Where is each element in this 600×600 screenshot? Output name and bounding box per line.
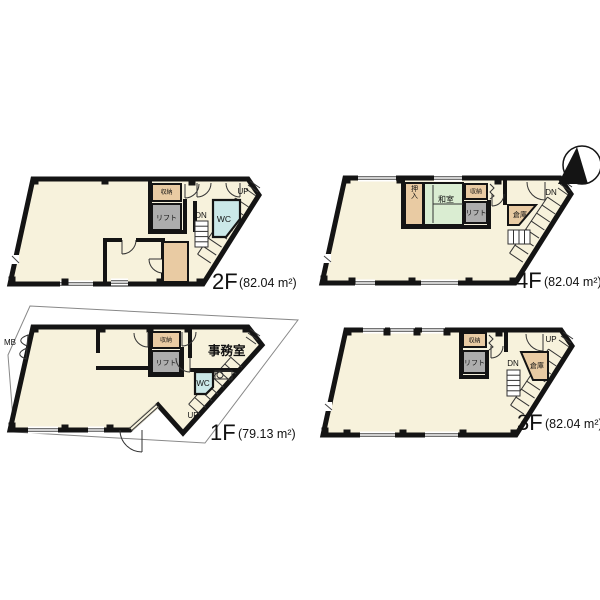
dn-stair-2f xyxy=(195,221,208,247)
room-small-storage-2f xyxy=(163,242,188,282)
landing-stair-4f xyxy=(508,230,530,244)
lift-label-2f: リフト xyxy=(156,214,177,222)
wc-label-1f: WC xyxy=(196,379,210,388)
lift-block-1f: 収納 リフト xyxy=(148,329,184,375)
lift-label-3f: リフト xyxy=(464,359,485,367)
washitsu-label-4f: 和室 xyxy=(438,194,454,204)
up-label-3f: UP xyxy=(545,335,556,344)
floor-plan-sheet: 収納 リフト WC DN UP 2F (82.04 m²) xyxy=(0,0,600,600)
lift-label-1f: リフト xyxy=(156,359,177,367)
floor-area-3f: (82.04 m²) xyxy=(545,417,600,431)
floor-name-1f: 1F xyxy=(210,420,236,445)
wc-label-2f: WC xyxy=(217,214,231,224)
storage-label-2f: 収納 xyxy=(160,188,172,196)
floor-area-2f: (82.04 m²) xyxy=(239,276,297,290)
up-label-2f: UP xyxy=(237,187,248,196)
floor-area-1f: (79.13 m²) xyxy=(238,427,296,441)
oshiire-label-4f: 押入 xyxy=(411,184,419,199)
dn-label-3f: DN xyxy=(507,359,519,368)
souko-label-3f: 倉庫 xyxy=(530,361,544,370)
souko-label-4f: 倉庫 xyxy=(513,210,527,219)
floor-plan-4f: 押入 和室 収納 リフト 倉庫 DN 4F (82.04 m²) xyxy=(321,175,600,294)
storage-label-1f: 収納 xyxy=(160,336,172,344)
floor-plan-3f: 収納 リフト 倉庫 DN UP 3F (82.04 m²) xyxy=(322,327,600,439)
dn-label-2f: DN xyxy=(195,211,207,220)
mb-label-1f: MB xyxy=(4,338,16,347)
up-label-1f: UP xyxy=(187,411,198,420)
storage-label-4f: 収納 xyxy=(470,188,482,196)
floor-name-4f: 4F xyxy=(516,268,542,293)
dn-stair-3f xyxy=(507,370,520,396)
floor-plan-drawing: 収納 リフト WC DN UP 2F (82.04 m²) xyxy=(0,0,600,600)
floor-name-3f: 3F xyxy=(517,410,543,435)
floor-plan-2f: 収納 リフト WC DN UP 2F (82.04 m²) xyxy=(9,178,297,295)
storage-label-3f: 収納 xyxy=(468,337,480,345)
floor-plan-1f: MB 収納 リフト 事務室 WC UP 1F (79.13 m²) xyxy=(4,306,298,452)
lift-label-4f: リフト xyxy=(466,209,487,217)
floor-name-2f: 2F xyxy=(212,269,238,294)
dn-label-4f: DN xyxy=(545,188,557,197)
floor-area-4f: (82.04 m²) xyxy=(544,275,600,289)
office-label-1f: 事務室 xyxy=(208,343,246,358)
north-arrow-icon xyxy=(558,146,600,184)
